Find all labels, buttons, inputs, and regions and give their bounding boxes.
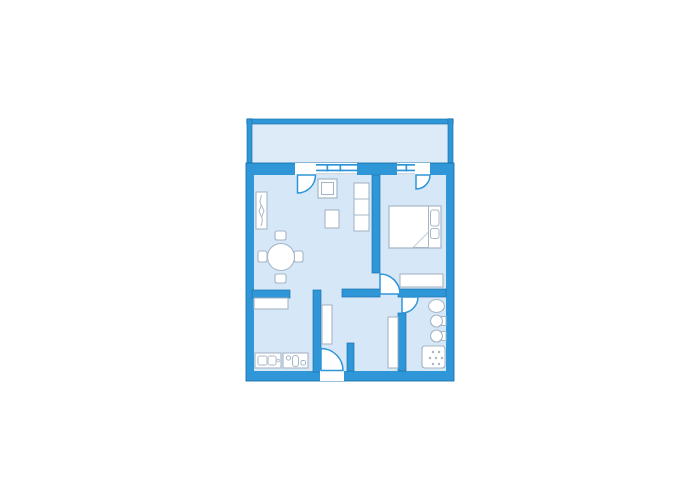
- furniture-dining-chair-top: [275, 231, 286, 240]
- window-bedroom-sill: [397, 173, 415, 174]
- furniture-shelf: [354, 183, 369, 231]
- opening-bedroom-balcony-door: [415, 163, 430, 175]
- interior-wall-entry-stub: [347, 343, 354, 371]
- bathroom-toilet-bowl: [431, 315, 443, 327]
- window-living-line-outer: [316, 164, 357, 166]
- window-bedroom-tick: [406, 164, 408, 171]
- kitchen-sink-bowl-left: [258, 356, 267, 365]
- balcony-wall-right: [448, 119, 453, 163]
- interior-wall-kitchen-hall: [313, 290, 321, 372]
- floor-plan: [0, 0, 700, 500]
- kitchen-sink-tap: [277, 359, 280, 362]
- furniture-dining-table: [268, 244, 295, 271]
- balcony-wall-left: [247, 119, 252, 163]
- interior-wall-living-bedroom: [372, 175, 380, 273]
- apartment-floor: [254, 175, 446, 371]
- shower-dot-6: [432, 363, 434, 365]
- furniture-dining-chair-bottom: [275, 274, 286, 283]
- shower-dot-5: [441, 357, 443, 359]
- furniture-bedroom-dresser: [400, 274, 443, 287]
- balcony-wall-top: [247, 119, 453, 124]
- furniture-hall-closet-left: [322, 305, 332, 344]
- interior-wall-hall-bath: [398, 313, 406, 371]
- kitchen-stove-knob: [301, 361, 306, 366]
- furniture-dining-chair-left: [258, 251, 267, 262]
- bathroom-sink: [429, 300, 445, 313]
- opening-entrance: [320, 370, 344, 381]
- bathroom-bidet-bowl: [431, 330, 443, 342]
- shower-dot-7: [438, 363, 440, 365]
- shower-dot-4: [435, 357, 437, 359]
- furniture-kitchen-cabinet: [254, 298, 288, 309]
- opening-living-balcony-door: [295, 163, 316, 175]
- shower-dot-3: [429, 357, 431, 359]
- kitchen-stove-pill: [293, 356, 299, 367]
- window-living-tick-2: [340, 164, 342, 171]
- interior-wall-bedroom-bottom: [398, 289, 446, 297]
- interior-wall-living-hall: [342, 289, 380, 297]
- floor-plan-page: [0, 0, 700, 500]
- furniture-armchair-seat: [322, 183, 334, 195]
- window-living-line-inner: [316, 170, 357, 172]
- window-living-tick-1: [327, 164, 329, 171]
- shower-dot-2: [438, 351, 440, 353]
- bed-pillow-bottom: [431, 229, 440, 239]
- interior-wall-living-kitchen: [252, 290, 290, 298]
- furniture-coffee-table: [325, 210, 339, 228]
- kitchen-sink-bowl-right: [268, 356, 276, 365]
- kitchen-stove-burner: [286, 356, 290, 360]
- furniture-dining-chair-right: [294, 251, 303, 262]
- shower-dot-1: [432, 351, 434, 353]
- window-living-sill: [316, 173, 357, 174]
- furniture-hall-closet-right: [388, 317, 398, 368]
- bed-pillow-top: [431, 210, 440, 226]
- balcony-floor: [252, 124, 448, 166]
